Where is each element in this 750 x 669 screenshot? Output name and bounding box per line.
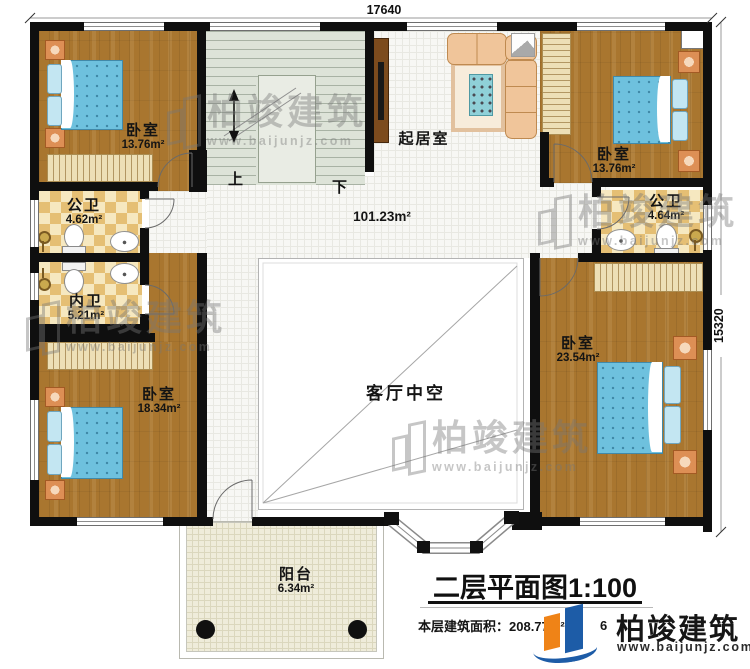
wardrobe (47, 154, 153, 182)
tv (378, 62, 384, 120)
wall (592, 187, 601, 197)
window (407, 22, 497, 31)
window (703, 350, 712, 430)
room-label-bedroom-top-right: 卧室 13.76m² (593, 146, 636, 176)
balcony-post-left (196, 620, 215, 639)
nightstand (45, 128, 65, 148)
pillow (47, 96, 62, 126)
shower-arm (42, 268, 44, 278)
sofa-right (505, 59, 537, 139)
wall (703, 22, 712, 532)
room-label-living-void: 客厅中空 (366, 384, 446, 404)
room-name: 内卫 (68, 293, 104, 310)
balcony-post-right (348, 620, 367, 639)
room-label-public-bath-left: 公卫 4.62m² (66, 197, 102, 227)
wall (30, 253, 149, 262)
sink (606, 229, 636, 251)
room-label-bedroom-top-left: 卧室 13.76m² (122, 122, 165, 152)
pillow (672, 111, 688, 141)
toilet (656, 224, 677, 251)
dimension-top: 17640 (352, 3, 416, 17)
bed-sheet (657, 76, 670, 142)
room-area: 23.54m² (557, 352, 600, 365)
nightstand (673, 450, 697, 474)
room-label-private-bath-left: 内卫 5.21m² (68, 293, 104, 323)
stairwell (206, 31, 365, 185)
pillow (47, 64, 62, 94)
room-name: 卧室 (122, 122, 165, 139)
room-area: 4.64m² (648, 210, 684, 223)
window (77, 517, 163, 526)
wall (252, 517, 392, 526)
room-name: 阳台 (278, 566, 314, 583)
wall (530, 253, 540, 517)
window (30, 273, 39, 300)
room-area: 6.34m² (278, 583, 314, 596)
stair-up-label: 上 (228, 168, 243, 189)
wall (197, 253, 207, 526)
window (210, 22, 320, 31)
room-label-corridor: 101.23m² (353, 209, 411, 225)
wall (30, 324, 149, 333)
bay-window-joints (384, 511, 519, 553)
bed-sheet (61, 60, 74, 128)
bay-window-mullion (392, 519, 511, 548)
room-area: 18.34m² (138, 403, 181, 416)
pillow (47, 411, 62, 442)
window (30, 200, 39, 247)
stair-down-label: 下 (332, 176, 347, 197)
pillow (664, 366, 681, 404)
coffee-table (469, 74, 493, 116)
bed-sheet (648, 362, 662, 452)
corner-plant (511, 33, 535, 57)
wall (365, 22, 374, 172)
wall (592, 178, 712, 187)
window (84, 22, 164, 31)
dimension-tick (716, 17, 726, 537)
wardrobe (542, 33, 571, 135)
sink (110, 263, 139, 284)
wall (30, 333, 155, 342)
nightstand (45, 387, 65, 407)
title-underline (428, 601, 642, 604)
wall (192, 182, 206, 191)
pillow (672, 79, 688, 109)
obscured-text-fragment: 6 (600, 618, 607, 633)
room-name: 客厅中空 (366, 384, 446, 404)
floor-hall-upper (149, 191, 207, 258)
stair-treads-top (206, 31, 365, 77)
nightstand (678, 51, 700, 73)
room-label-public-bath-right: 公卫 4.64m² (648, 193, 684, 223)
floor-plan-canvas: 卧室 13.76m² 公卫 4.62m² 内卫 5.21m² 卧室 18.34m… (0, 0, 750, 669)
shower-head (38, 278, 51, 291)
nightstand (45, 480, 65, 500)
room-label-balcony: 阳台 6.34m² (278, 566, 314, 596)
dimension-right: 15320 (712, 295, 726, 357)
window (580, 517, 665, 526)
room-area: 13.76m² (122, 139, 165, 152)
window (30, 400, 39, 480)
sofa-top (447, 33, 507, 65)
wardrobe (47, 342, 153, 370)
pillow (664, 406, 681, 444)
floor-corridor-left-strip (206, 258, 258, 526)
room-name: 卧室 (138, 386, 181, 403)
stair-landing (258, 75, 316, 183)
shower-arm (694, 240, 696, 251)
bay-window-casing (392, 519, 511, 548)
window (577, 22, 665, 31)
nightstand (45, 40, 65, 60)
door-nook (681, 30, 704, 49)
room-label-bedroom-bottom-right: 卧室 23.54m² (557, 335, 600, 365)
wall (540, 178, 554, 187)
room-area: 5.21m² (68, 310, 104, 323)
window (703, 205, 712, 250)
wall (140, 191, 149, 199)
room-area: 4.62m² (66, 214, 102, 227)
room-name: 卧室 (557, 335, 600, 352)
sink (110, 231, 139, 252)
room-name: 卧室 (593, 146, 636, 163)
room-name: 公卫 (648, 193, 684, 210)
shower-arm (42, 241, 44, 252)
shower-head (38, 231, 51, 244)
room-name: 起居室 (398, 130, 449, 147)
wall (512, 512, 542, 530)
room-area: 13.76m² (593, 163, 636, 176)
room-name: 公卫 (66, 197, 102, 214)
bay-window-glass (392, 519, 511, 548)
page-title: 二层平面图1:100 (420, 566, 650, 605)
wall (30, 182, 158, 191)
wardrobe (594, 263, 704, 292)
room-area: 101.23m² (353, 209, 411, 225)
nightstand (673, 336, 697, 360)
room-label-bedroom-bottom-left: 卧室 18.34m² (138, 386, 181, 416)
wall (578, 253, 712, 262)
brand-url: www.baijunjz.com (617, 640, 750, 654)
nightstand (678, 150, 700, 172)
room-label-living-room: 起居室 (398, 130, 449, 147)
bed-sheet (61, 407, 74, 477)
shower-head (689, 229, 703, 243)
pillow (47, 444, 62, 475)
stair-treads-right (316, 77, 365, 185)
toilet (64, 269, 84, 294)
